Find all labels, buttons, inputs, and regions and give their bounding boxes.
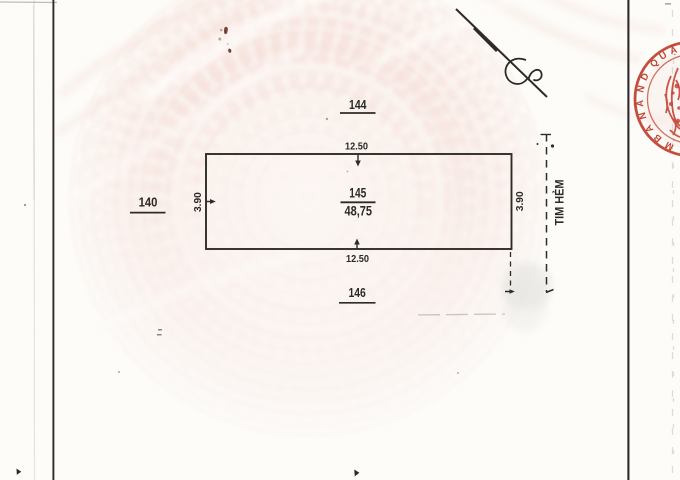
svg-text:12.50: 12.50 xyxy=(346,254,369,265)
svg-text:140: 140 xyxy=(139,196,158,210)
svg-text:12.50: 12.50 xyxy=(345,142,368,153)
svg-text:48,75: 48,75 xyxy=(345,204,373,219)
svg-text:146: 146 xyxy=(349,286,366,300)
svg-text:TIM HẺM: TIM HẺM xyxy=(552,180,567,226)
svg-text:145: 145 xyxy=(349,185,366,200)
svg-text:3.90: 3.90 xyxy=(193,192,204,212)
svg-text:3.90: 3.90 xyxy=(515,191,526,211)
svg-text:Ầ: Ầ xyxy=(635,100,646,107)
svg-text:144: 144 xyxy=(349,97,367,112)
